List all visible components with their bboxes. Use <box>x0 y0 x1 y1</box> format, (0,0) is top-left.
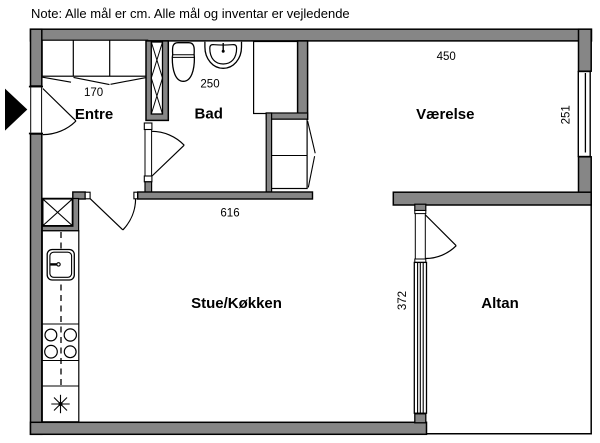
svg-text:251: 251 <box>561 105 573 124</box>
svg-text:450: 450 <box>437 51 456 63</box>
svg-text:Værelse: Værelse <box>416 106 474 123</box>
svg-text:372: 372 <box>397 291 409 310</box>
svg-text:250: 250 <box>200 79 219 91</box>
svg-text:Note: Alle mål er cm. Alle mål: Note: Alle mål er cm. Alle mål og invent… <box>31 6 350 21</box>
svg-text:Entre: Entre <box>75 106 113 123</box>
svg-text:Stue/Køkken: Stue/Køkken <box>191 295 282 312</box>
svg-text:616: 616 <box>220 207 239 219</box>
svg-text:Bad: Bad <box>195 106 223 123</box>
svg-text:170: 170 <box>84 87 103 99</box>
svg-text:Altan: Altan <box>481 295 519 312</box>
